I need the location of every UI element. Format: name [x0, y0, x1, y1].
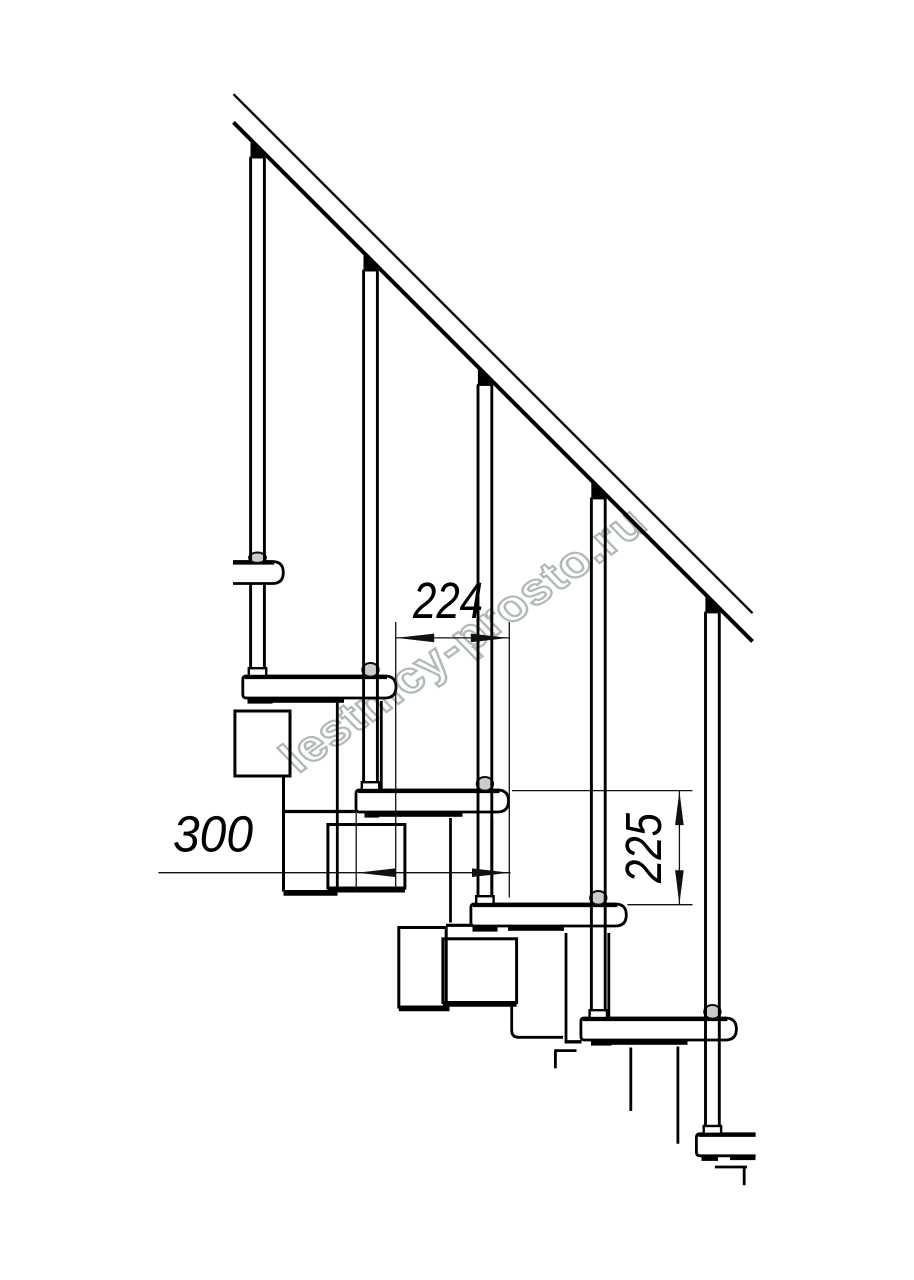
svg-text:224: 224	[412, 572, 483, 629]
svg-text:225: 225	[615, 812, 672, 883]
svg-text:lestnicy-prosto.ru: lestnicy-prosto.ru	[269, 497, 658, 781]
svg-text:300: 300	[173, 806, 253, 863]
